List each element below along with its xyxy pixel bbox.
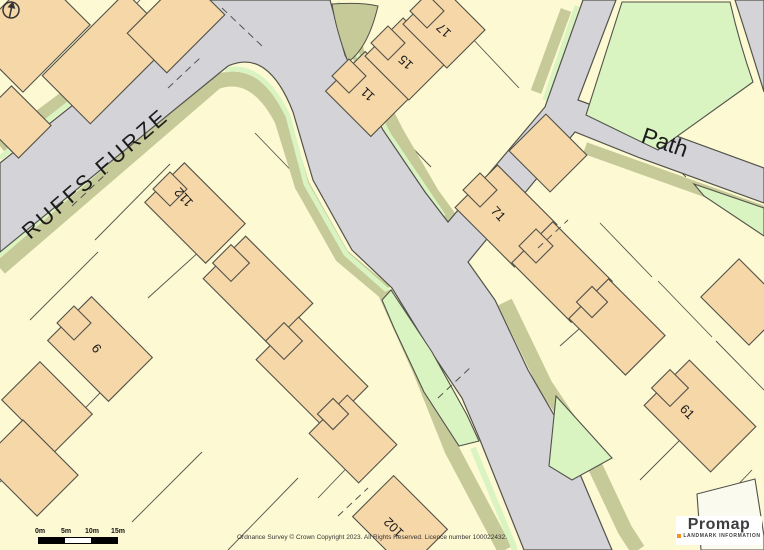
scale-bar: 0m 5m 10m 15m — [36, 528, 126, 546]
scale-tick-label: 5m — [56, 528, 76, 535]
ordnance-survey-map: RUFFS FURZE Path 17 15 11 112 71 9 61 10… — [0, 0, 764, 550]
promap-logo-title: Promap — [676, 516, 762, 533]
scale-tick-label: 10m — [82, 528, 102, 535]
copyright-notice: Ordnance Survey © Crown Copyright 2023. … — [237, 534, 507, 541]
promap-logo-subtitle: LANDMARK INFORMATION — [683, 533, 760, 539]
scale-bar-segments — [38, 537, 118, 544]
landmark-square-icon — [677, 534, 681, 538]
map-canvas[interactable]: RUFFS FURZE Path 17 15 11 112 71 9 61 10… — [0, 0, 764, 550]
scale-tick-label: 15m — [108, 528, 128, 535]
scale-tick-label: 0m — [30, 528, 50, 535]
promap-logo: Promap LANDMARK INFORMATION — [676, 516, 762, 545]
